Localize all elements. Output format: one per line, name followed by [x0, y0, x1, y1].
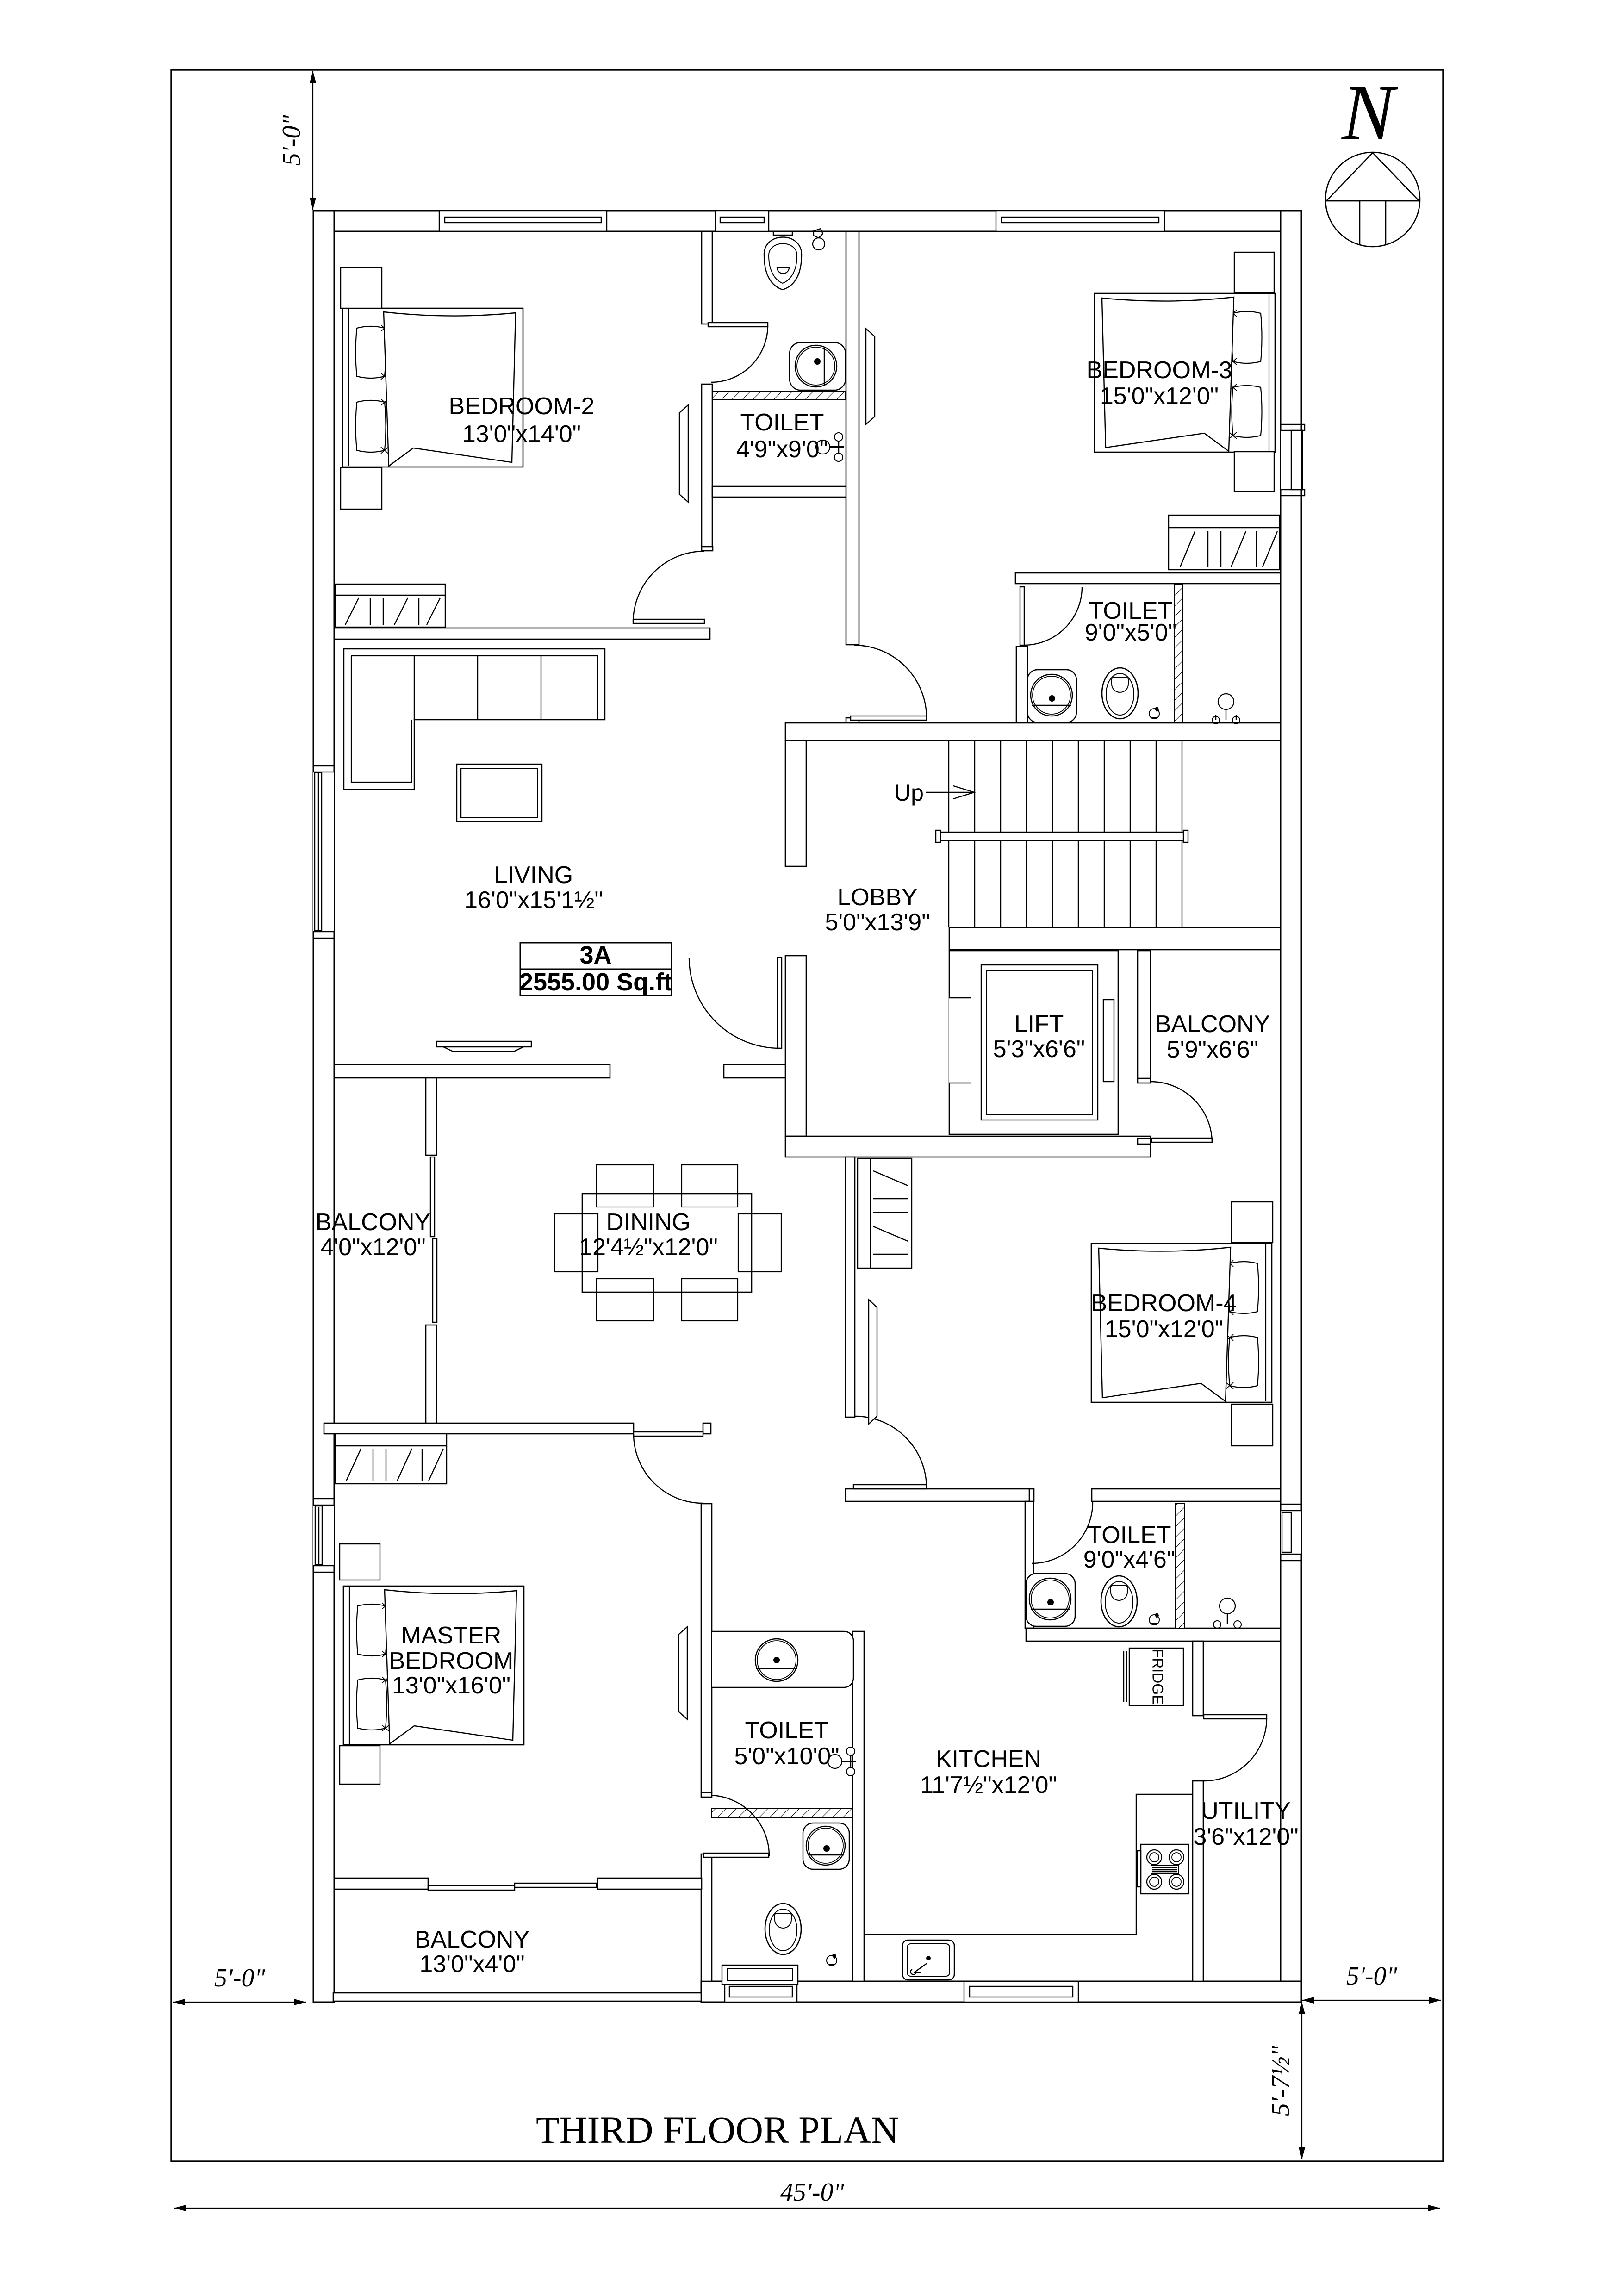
svg-text:5'-0": 5'-0" — [214, 1964, 266, 1992]
svg-text:BALCONY: BALCONY — [316, 1209, 431, 1236]
svg-text:UTILITY: UTILITY — [1201, 1798, 1291, 1824]
svg-text:BALCONY: BALCONY — [415, 1926, 530, 1953]
svg-text:13'0"x16'0": 13'0"x16'0" — [392, 1672, 510, 1699]
svg-text:5'0"x13'9": 5'0"x13'9" — [825, 909, 930, 936]
svg-text:5'-7½": 5'-7½" — [1266, 2045, 1295, 2116]
svg-text:9'0"x5'0": 9'0"x5'0" — [1085, 619, 1176, 646]
svg-text:KITCHEN: KITCHEN — [936, 1746, 1041, 1773]
svg-text:BEDROOM: BEDROOM — [389, 1648, 514, 1674]
svg-text:LOBBY: LOBBY — [837, 884, 917, 911]
svg-text:15'0"x12'0": 15'0"x12'0" — [1105, 1316, 1223, 1343]
svg-text:4'9"x9'0": 4'9"x9'0" — [736, 436, 828, 463]
svg-text:TOILET: TOILET — [1087, 1522, 1171, 1549]
svg-text:Up: Up — [894, 780, 924, 806]
svg-text:TOILET: TOILET — [745, 1717, 828, 1744]
svg-text:3A: 3A — [579, 941, 611, 969]
svg-text:N: N — [1341, 69, 1398, 156]
svg-text:MASTER: MASTER — [401, 1622, 502, 1649]
svg-text:BEDROOM-3: BEDROOM-3 — [1087, 357, 1232, 384]
svg-text:BALCONY: BALCONY — [1155, 1011, 1270, 1038]
svg-text:15'0"x12'0": 15'0"x12'0" — [1100, 383, 1219, 410]
svg-text:13'0"x14'0": 13'0"x14'0" — [462, 421, 581, 448]
svg-text:3'6"x12'0": 3'6"x12'0" — [1193, 1823, 1298, 1850]
svg-text:FRIDGE: FRIDGE — [1150, 1649, 1166, 1705]
svg-text:11'7½"x12'0": 11'7½"x12'0" — [920, 1772, 1057, 1798]
svg-text:LIVING: LIVING — [494, 862, 573, 889]
svg-text:9'0"x4'6": 9'0"x4'6" — [1083, 1546, 1175, 1573]
svg-text:LIFT: LIFT — [1014, 1011, 1064, 1038]
svg-text:THIRD FLOOR PLAN: THIRD FLOOR PLAN — [536, 2109, 899, 2151]
svg-text:12'4½"x12'0": 12'4½"x12'0" — [579, 1234, 718, 1261]
svg-text:5'-0": 5'-0" — [277, 114, 306, 166]
svg-text:TOILET: TOILET — [740, 409, 824, 436]
svg-text:BEDROOM-2: BEDROOM-2 — [449, 393, 595, 420]
svg-text:5'9"x6'6": 5'9"x6'6" — [1167, 1036, 1258, 1063]
svg-text:5'-0": 5'-0" — [1346, 1962, 1398, 1991]
svg-text:45'-0": 45'-0" — [780, 2178, 845, 2207]
svg-text:5'3"x6'6": 5'3"x6'6" — [993, 1036, 1085, 1063]
svg-text:4'0"x12'0": 4'0"x12'0" — [320, 1234, 425, 1261]
svg-text:16'0"x15'1½": 16'0"x15'1½" — [464, 887, 603, 914]
svg-text:5'0"x10'0": 5'0"x10'0" — [734, 1743, 839, 1770]
svg-text:BEDROOM-4: BEDROOM-4 — [1091, 1290, 1237, 1317]
svg-text:13'0"x4'0": 13'0"x4'0" — [419, 1951, 524, 1978]
svg-text:DINING: DINING — [606, 1209, 691, 1236]
svg-text:2555.00 Sq.ft: 2555.00 Sq.ft — [519, 968, 672, 996]
